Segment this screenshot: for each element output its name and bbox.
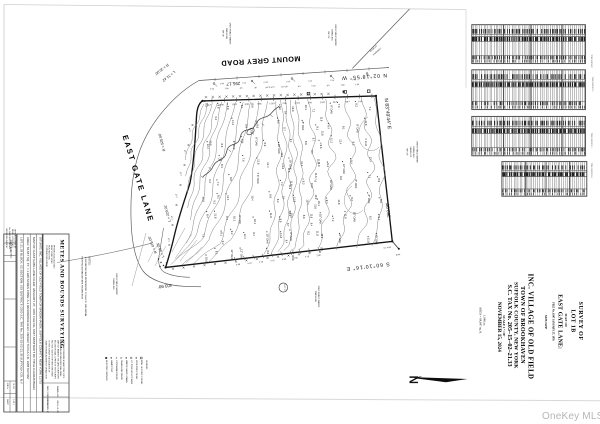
svg-text:11.2: 11.2 bbox=[300, 161, 304, 167]
svg-text:SITUATE: SITUATE bbox=[544, 315, 548, 330]
svg-text:DRAWN: MJC: DRAWN: MJC bbox=[56, 386, 59, 398]
svg-text:MAP OF: EAST GATE LANE FILED:: MAP OF: EAST GATE LANE FILED: JANUARY 27… bbox=[32, 237, 36, 391]
svg-text:9.2: 9.2 bbox=[221, 241, 225, 245]
svg-text:98.1: 98.1 bbox=[354, 83, 359, 85]
svg-text:MON: MON bbox=[395, 253, 400, 256]
svg-text:6" OAK: 6" OAK bbox=[338, 234, 342, 243]
svg-text:10.6: 10.6 bbox=[291, 106, 295, 112]
svg-text:8.7: 8.7 bbox=[311, 138, 314, 142]
svg-text:99.2: 99.2 bbox=[316, 253, 321, 256]
svg-text:DWELLING: DWELLING bbox=[412, 147, 414, 158]
svg-text:UP: UP bbox=[326, 84, 330, 86]
svg-text:97.4: 97.4 bbox=[270, 259, 275, 262]
svg-text:10" OAK: 10" OAK bbox=[352, 212, 356, 223]
svg-text:8.2: 8.2 bbox=[302, 181, 306, 185]
svg-text:DWELLING: DWELLING bbox=[331, 30, 333, 41]
svg-text:24-118: 24-118 bbox=[12, 383, 14, 388]
svg-text:7.2: 7.2 bbox=[312, 109, 315, 113]
svg-text:7.6: 7.6 bbox=[337, 104, 341, 108]
svg-text:8.6: 8.6 bbox=[263, 143, 267, 147]
svg-text:8.2: 8.2 bbox=[276, 199, 280, 203]
svg-text:8.9: 8.9 bbox=[226, 106, 230, 110]
svg-text:97.4: 97.4 bbox=[258, 260, 263, 263]
svg-text:7.6: 7.6 bbox=[313, 178, 317, 182]
svg-text:8" OAK: 8" OAK bbox=[232, 141, 236, 150]
svg-text:11.6: 11.6 bbox=[321, 131, 324, 136]
svg-text:9.4: 9.4 bbox=[289, 139, 292, 143]
svg-text:JOB No.: JOB No. bbox=[6, 383, 8, 390]
svg-text:1.948 ac.: 1.948 ac. bbox=[483, 315, 487, 326]
svg-text:10.6: 10.6 bbox=[251, 102, 255, 108]
svg-text:12.4: 12.4 bbox=[206, 144, 210, 150]
svg-text:USES PUBLIC WATER: USES PUBLIC WATER bbox=[228, 23, 231, 45]
svg-text:260.00': 260.00' bbox=[385, 202, 392, 217]
svg-text:CLF 0.3'N: CLF 0.3'N bbox=[265, 85, 275, 88]
svg-text:10.1: 10.1 bbox=[304, 105, 308, 111]
svg-text:9.2: 9.2 bbox=[230, 231, 234, 235]
svg-text:10.4: 10.4 bbox=[306, 199, 310, 205]
svg-text:OFFICE: 11/18/24 JR: OFFICE: 11/18/24 JR bbox=[13, 229, 15, 249]
svg-text:9.1: 9.1 bbox=[220, 232, 224, 236]
svg-text:99.1: 99.1 bbox=[330, 78, 334, 80]
svg-text:11.8: 11.8 bbox=[367, 238, 371, 244]
svg-text:10.1: 10.1 bbox=[253, 219, 257, 225]
svg-text:8.4: 8.4 bbox=[225, 216, 229, 220]
svg-text:TREE SURVEY 4: TREE SURVEY 4 bbox=[590, 163, 592, 178]
svg-text:FILE No. 6347 JANUARY 27, 1976: FILE No. 6347 JANUARY 27, 1976 bbox=[551, 302, 554, 341]
svg-text:N/F OF: N/F OF bbox=[327, 32, 329, 40]
svg-text:97.9: 97.9 bbox=[357, 100, 362, 102]
svg-text:9.4: 9.4 bbox=[281, 196, 284, 200]
svg-text:97.4: 97.4 bbox=[304, 255, 309, 258]
svg-text:9.4: 9.4 bbox=[325, 200, 329, 204]
svg-text:MAP NOT BEARING THE LAND SURVE: MAP NOT BEARING THE LAND SURVEYORS bbox=[56, 340, 59, 380]
svg-text:9.4: 9.4 bbox=[206, 214, 210, 218]
svg-text:N 83°49′44″ E: N 83°49′44″ E bbox=[383, 98, 392, 130]
svg-text:99.4: 99.4 bbox=[209, 87, 214, 89]
svg-text:SHEET: SHEET bbox=[6, 399, 8, 406]
svg-text:10.2: 10.2 bbox=[320, 233, 323, 238]
svg-text:USES PUBLIC WATER: USES PUBLIC WATER bbox=[334, 24, 337, 46]
svg-text:8" OAK: 8" OAK bbox=[354, 180, 358, 189]
svg-text:LANDS OF: LANDS OF bbox=[409, 147, 412, 158]
svg-text:9.8: 9.8 bbox=[229, 177, 233, 181]
svg-text:8.9: 8.9 bbox=[244, 124, 248, 128]
svg-text:10" OAK: 10" OAK bbox=[375, 234, 379, 245]
svg-text:7.2: 7.2 bbox=[368, 175, 372, 179]
svg-text:x 9.6: x 9.6 bbox=[319, 143, 323, 149]
svg-text:7.2: 7.2 bbox=[280, 182, 284, 186]
svg-text:9.4: 9.4 bbox=[326, 125, 330, 129]
svg-text:TREE SURVEY: TREE SURVEY bbox=[590, 54, 592, 68]
svg-text:LEGEND:: LEGEND: bbox=[145, 360, 147, 370]
svg-text:10.1: 10.1 bbox=[232, 216, 236, 222]
svg-text:9.8: 9.8 bbox=[278, 219, 282, 223]
svg-text:11.6: 11.6 bbox=[314, 204, 317, 209]
svg-text:10.2: 10.2 bbox=[288, 211, 291, 216]
svg-text:EXISTING ELEVATIONS ARE SHOWN: EXISTING ELEVATIONS ARE SHOWN THUS: bbox=[81, 257, 84, 300]
svg-text:STOCKADE FENCE: STOCKADE FENCE bbox=[115, 360, 118, 380]
svg-text:7.2: 7.2 bbox=[202, 234, 206, 238]
svg-text:SITUATE: INC. VILLAGE OF OLD F: SITUATE: INC. VILLAGE OF OLD FIELD TOWN … bbox=[38, 237, 42, 384]
svg-text:6" OAK: 6" OAK bbox=[329, 105, 333, 114]
svg-text:N/F OF: N/F OF bbox=[222, 30, 224, 38]
svg-text:DWELLING: DWELLING bbox=[225, 28, 227, 39]
svg-text:99.1: 99.1 bbox=[286, 80, 290, 82]
svg-text:10.4: 10.4 bbox=[250, 195, 254, 201]
svg-text:x 9.6: x 9.6 bbox=[255, 122, 259, 128]
svg-text:9.2: 9.2 bbox=[307, 231, 311, 235]
svg-text:11.6: 11.6 bbox=[319, 117, 322, 122]
svg-text:10" OAK: 10" OAK bbox=[265, 234, 269, 245]
svg-text:98.6: 98.6 bbox=[256, 102, 261, 104]
svg-text:8.7: 8.7 bbox=[320, 247, 323, 251]
svg-text:9.2: 9.2 bbox=[355, 103, 359, 107]
svg-text:6" OAK: 6" OAK bbox=[238, 215, 242, 224]
svg-text:R = 525.00': R = 525.00' bbox=[158, 133, 167, 152]
svg-text:LOT 1B: LOT 1B bbox=[569, 309, 575, 332]
svg-text:99.1: 99.1 bbox=[308, 79, 312, 81]
svg-text:7.2: 7.2 bbox=[216, 182, 220, 186]
svg-text:12.4: 12.4 bbox=[243, 234, 247, 240]
svg-text:9.2: 9.2 bbox=[214, 117, 218, 121]
svg-text:99.1: 99.1 bbox=[242, 81, 246, 83]
svg-text:JOB No: 24-118: JOB No: 24-118 bbox=[56, 400, 58, 413]
svg-text:NOTES:: NOTES: bbox=[87, 257, 90, 266]
svg-text:7.2: 7.2 bbox=[331, 218, 335, 222]
svg-text:CERTIFIED TO:: CERTIFIED TO: bbox=[9, 240, 13, 259]
svg-text:9.2: 9.2 bbox=[212, 201, 216, 205]
svg-text:UT. POLE W/ GUY WIRE: UT. POLE W/ GUY WIRE bbox=[130, 360, 132, 385]
svg-text:UP: UP bbox=[253, 86, 257, 88]
svg-text:8.6: 8.6 bbox=[339, 176, 343, 180]
svg-text:12.4: 12.4 bbox=[368, 157, 372, 163]
svg-text:33 PRIMROSE DRIVE: 33 PRIMROSE DRIVE bbox=[45, 245, 47, 268]
svg-text:S.C. TAX No. 205–15–02–21.33: S.C. TAX No. 205–15–02–21.33 bbox=[506, 284, 513, 366]
svg-text:6" OAK: 6" OAK bbox=[367, 195, 371, 204]
svg-text:11.6: 11.6 bbox=[309, 214, 312, 219]
svg-text:UP #12: UP #12 bbox=[280, 85, 288, 88]
svg-text:7.2: 7.2 bbox=[368, 107, 372, 111]
svg-text:LOT 17: LOT 17 bbox=[283, 285, 285, 291]
svg-text:9.1: 9.1 bbox=[342, 126, 346, 130]
svg-text:8.6: 8.6 bbox=[266, 250, 270, 254]
svg-text:100.1: 100.1 bbox=[319, 100, 325, 102]
svg-text:11.8: 11.8 bbox=[214, 213, 218, 219]
svg-text:TOWN OF BROOKHAVEN: TOWN OF BROOKHAVEN bbox=[519, 286, 525, 364]
svg-text:11.6: 11.6 bbox=[288, 185, 291, 190]
svg-text:8.7: 8.7 bbox=[283, 127, 286, 131]
svg-text:SCALE: 1" = 30': SCALE: 1" = 30' bbox=[46, 400, 49, 414]
svg-text:R = 20.00': R = 20.00' bbox=[154, 63, 170, 76]
svg-text:8.6: 8.6 bbox=[240, 139, 244, 143]
svg-text:9.4: 9.4 bbox=[349, 160, 353, 164]
svg-text:8.9: 8.9 bbox=[304, 141, 308, 145]
svg-text:L = 229.01': L = 229.01' bbox=[163, 204, 172, 222]
svg-text:10.2: 10.2 bbox=[314, 195, 317, 200]
svg-text:7.6: 7.6 bbox=[242, 158, 246, 162]
svg-text:99.4: 99.4 bbox=[311, 84, 316, 86]
svg-text:11.8: 11.8 bbox=[364, 120, 368, 126]
svg-text:MON. FD.: MON. FD. bbox=[382, 246, 391, 249]
svg-text:8.6: 8.6 bbox=[302, 215, 306, 219]
svg-text:101.4: 101.4 bbox=[294, 101, 300, 103]
svg-text:9.4: 9.4 bbox=[285, 240, 288, 244]
svg-text:97.2: 97.2 bbox=[188, 128, 191, 133]
svg-text:11.8: 11.8 bbox=[257, 159, 261, 165]
svg-text:10" OAK: 10" OAK bbox=[329, 180, 333, 191]
svg-text:DWELLING: DWELLING bbox=[112, 279, 114, 290]
svg-text:L = 31.42': L = 31.42' bbox=[161, 70, 176, 83]
svg-text:98.6: 98.6 bbox=[244, 102, 249, 104]
svg-text:9.2: 9.2 bbox=[350, 197, 354, 201]
svg-text:51: 51 bbox=[250, 130, 252, 133]
svg-text:8" OAK: 8" OAK bbox=[301, 122, 305, 131]
svg-text:403.90': 403.90' bbox=[158, 283, 173, 290]
svg-text:TREE SURVEY 3: TREE SURVEY 3 bbox=[590, 133, 592, 148]
svg-text:LAMP POST: LAMP POST bbox=[110, 360, 113, 373]
svg-text:12" OAK: 12" OAK bbox=[342, 164, 346, 175]
svg-text:8.9: 8.9 bbox=[377, 178, 381, 182]
svg-text:8.6: 8.6 bbox=[379, 199, 383, 203]
svg-text:12.4: 12.4 bbox=[338, 139, 342, 145]
svg-text:11.6: 11.6 bbox=[314, 173, 317, 178]
svg-text:8.4: 8.4 bbox=[220, 164, 224, 168]
svg-text:9.1: 9.1 bbox=[377, 217, 381, 221]
svg-text:11.2: 11.2 bbox=[330, 138, 334, 144]
svg-text:12.4: 12.4 bbox=[226, 195, 230, 201]
svg-text:MON. IN CONC. FOUND: MON. IN CONC. FOUND bbox=[140, 360, 142, 384]
svg-text:DWELLING: DWELLING bbox=[314, 291, 316, 302]
svg-text:9.1: 9.1 bbox=[240, 105, 244, 109]
svg-text:95.8: 95.8 bbox=[235, 263, 240, 266]
svg-text:EAST GATE LANE:: EAST GATE LANE: bbox=[556, 294, 562, 349]
svg-text:11.8: 11.8 bbox=[316, 231, 320, 237]
svg-text:95.8: 95.8 bbox=[281, 257, 286, 260]
svg-text:6" OAK: 6" OAK bbox=[289, 232, 293, 241]
svg-text:CHAIN LINK FENCE: CHAIN LINK FENCE bbox=[120, 360, 123, 380]
svg-text:USES PUBLIC WATER: USES PUBLIC WATER bbox=[115, 273, 118, 295]
svg-text:SURVEY OF: SURVEY OF bbox=[577, 301, 583, 340]
svg-text:7.6: 7.6 bbox=[219, 157, 223, 161]
svg-text:12" OAK: 12" OAK bbox=[230, 249, 234, 260]
svg-text:9.2: 9.2 bbox=[208, 179, 212, 183]
svg-text:9.1: 9.1 bbox=[217, 195, 221, 199]
svg-text:97.2: 97.2 bbox=[174, 194, 177, 199]
svg-text:EAST GATE LANE: EAST GATE LANE bbox=[121, 134, 156, 224]
svg-text:8.2: 8.2 bbox=[352, 142, 356, 146]
svg-text:N 02°18′55″ W: N 02°18′55″ W bbox=[341, 72, 387, 81]
svg-text:12" OAK: 12" OAK bbox=[239, 249, 243, 260]
svg-text:10.6: 10.6 bbox=[204, 257, 208, 263]
svg-text:UP: UP bbox=[297, 85, 301, 87]
svg-text:SECTION 7209 OF THE NEW YORK S: SECTION 7209 OF THE NEW YORK STATE bbox=[50, 340, 53, 378]
svg-text:100.1: 100.1 bbox=[231, 103, 237, 105]
svg-text:TO THIS SURVEY IS A VIOLATION: TO THIS SURVEY IS A VIOLATION OF bbox=[48, 340, 51, 373]
svg-text:INKED SEAL OR EMBOSSED SEAL SH: INKED SEAL OR EMBOSSED SEAL SHALL bbox=[59, 340, 62, 377]
svg-text:6" OAK: 6" OAK bbox=[256, 175, 260, 184]
svg-text:11.6: 11.6 bbox=[280, 152, 283, 157]
svg-text:PHONE (631) 351-5900: PHONE (631) 351-5900 bbox=[53, 245, 55, 269]
svg-text:NOT BE CONSIDERED A VALID TRUE: NOT BE CONSIDERED A VALID TRUE COPY. bbox=[62, 340, 65, 379]
svg-text:ELECTRIC SERVICE: ELECTRIC SERVICE bbox=[105, 360, 107, 381]
svg-text:97.2: 97.2 bbox=[179, 172, 182, 177]
svg-text:9.1: 9.1 bbox=[316, 126, 320, 130]
svg-text:10.2: 10.2 bbox=[310, 183, 313, 188]
svg-text:9.2: 9.2 bbox=[278, 106, 282, 110]
svg-text:10.6: 10.6 bbox=[202, 197, 206, 203]
svg-text:100.1: 100.1 bbox=[268, 102, 274, 104]
svg-text:N/F OF: N/F OF bbox=[405, 149, 407, 157]
svg-text:NEW YORK 11743: NEW YORK 11743 bbox=[50, 245, 52, 264]
svg-text:99.2: 99.2 bbox=[282, 101, 287, 103]
svg-text:9.2: 9.2 bbox=[326, 163, 330, 167]
svg-text:99.2: 99.2 bbox=[307, 101, 312, 103]
svg-text:TREE SURVEY 2: TREE SURVEY 2 bbox=[591, 77, 593, 92]
svg-text:11.8: 11.8 bbox=[292, 197, 296, 203]
svg-text:98.4: 98.4 bbox=[220, 82, 224, 84]
svg-text:HUNTINGTON: HUNTINGTON bbox=[47, 245, 49, 260]
svg-text:98.1: 98.1 bbox=[340, 83, 345, 85]
svg-text:1. ELEVATIONS ARE REFERENCED T: 1. ELEVATIONS ARE REFERENCED TO N.A.V.D.… bbox=[84, 257, 87, 317]
svg-text:INC. VILLAGE OF OLD FIELD: INC. VILLAGE OF OLD FIELD bbox=[527, 274, 534, 380]
svg-text:9.4: 9.4 bbox=[310, 223, 313, 227]
svg-text:295.17': 295.17' bbox=[226, 81, 241, 87]
svg-text:NOVEMBER 15, 2024: NOVEMBER 15, 2024 bbox=[496, 302, 502, 352]
svg-text:USES PUBLIC WATER: USES PUBLIC WATER bbox=[416, 141, 419, 163]
svg-text:11.6: 11.6 bbox=[287, 168, 290, 173]
svg-text:x 98: x 98 bbox=[332, 100, 337, 102]
svg-text:97.2: 97.2 bbox=[167, 238, 170, 243]
svg-text:MAP OF: MAP OF bbox=[564, 313, 568, 327]
svg-text:10.1: 10.1 bbox=[317, 201, 321, 207]
svg-text:S 60°10′16″ E: S 60°10′16″ E bbox=[345, 260, 390, 271]
svg-text:1 OF 1: 1 OF 1 bbox=[12, 399, 14, 405]
svg-text:METES AND BOUNDS SURVEYING: METES AND BOUNDS SURVEYING bbox=[59, 240, 65, 349]
svg-text:100.0: 100.0 bbox=[264, 80, 269, 82]
svg-text:8.6: 8.6 bbox=[220, 144, 224, 148]
svg-text:8.2: 8.2 bbox=[368, 216, 372, 220]
svg-text:x 9.6: x 9.6 bbox=[281, 163, 285, 169]
svg-text:8" OAK: 8" OAK bbox=[254, 137, 258, 146]
svg-text:97.4: 97.4 bbox=[247, 261, 252, 264]
svg-text:IRON PIPE FOUND: IRON PIPE FOUND bbox=[135, 360, 137, 379]
svg-text:9.1: 9.1 bbox=[215, 251, 219, 255]
svg-text:REVISIONS DATE BY: REVISIONS DATE BY bbox=[5, 229, 8, 250]
svg-text:11.8: 11.8 bbox=[364, 141, 368, 147]
svg-text:11.8: 11.8 bbox=[337, 199, 341, 205]
svg-text:AREA: 84,847 SQ. FT. = 1.948 A: AREA: 84,847 SQ. FT. = 1.948 ACRES ZONE:… bbox=[26, 237, 30, 379]
svg-text:11.6: 11.6 bbox=[317, 162, 320, 167]
svg-text:11.2: 11.2 bbox=[231, 120, 235, 126]
svg-text:8" OAK: 8" OAK bbox=[355, 124, 359, 133]
svg-text:10" OAK: 10" OAK bbox=[318, 214, 322, 225]
svg-text:UNAUTHORIZED ALTERATION OR ADD: UNAUTHORIZED ALTERATION OR ADDITION bbox=[45, 340, 48, 380]
svg-text:11.8: 11.8 bbox=[279, 233, 283, 239]
svg-text:N: N bbox=[407, 376, 419, 384]
svg-text:11.8: 11.8 bbox=[269, 213, 273, 219]
svg-text:8.7: 8.7 bbox=[286, 223, 289, 227]
svg-text:MOUNT GREY ROAD: MOUNT GREY ROAD bbox=[221, 54, 301, 68]
svg-text:8.9: 8.9 bbox=[269, 194, 273, 198]
svg-text:11.8: 11.8 bbox=[343, 214, 347, 220]
svg-text:9.4: 9.4 bbox=[252, 232, 256, 236]
svg-text:EDUCATION LAW. COPIES OF THIS: EDUCATION LAW. COPIES OF THIS SURVEY bbox=[53, 340, 56, 380]
svg-text:LOT: 21.33 BLOCK: 02 SECTION: LOT: 21.33 BLOCK: 02 SECTION: 015 DISTRI… bbox=[19, 237, 23, 384]
svg-text:12.4: 12.4 bbox=[266, 162, 270, 168]
svg-text:8.2: 8.2 bbox=[276, 120, 280, 124]
svg-text:WATER VALVE & MAIN: WATER VALVE & MAIN bbox=[125, 360, 128, 383]
svg-text:AREA = 84,847 sq. ft.: AREA = 84,847 sq. ft. bbox=[478, 307, 483, 334]
svg-text:USES PUBLIC WATER: USES PUBLIC WATER bbox=[317, 286, 320, 308]
svg-text:L = 48.26': L = 48.26' bbox=[156, 242, 166, 258]
